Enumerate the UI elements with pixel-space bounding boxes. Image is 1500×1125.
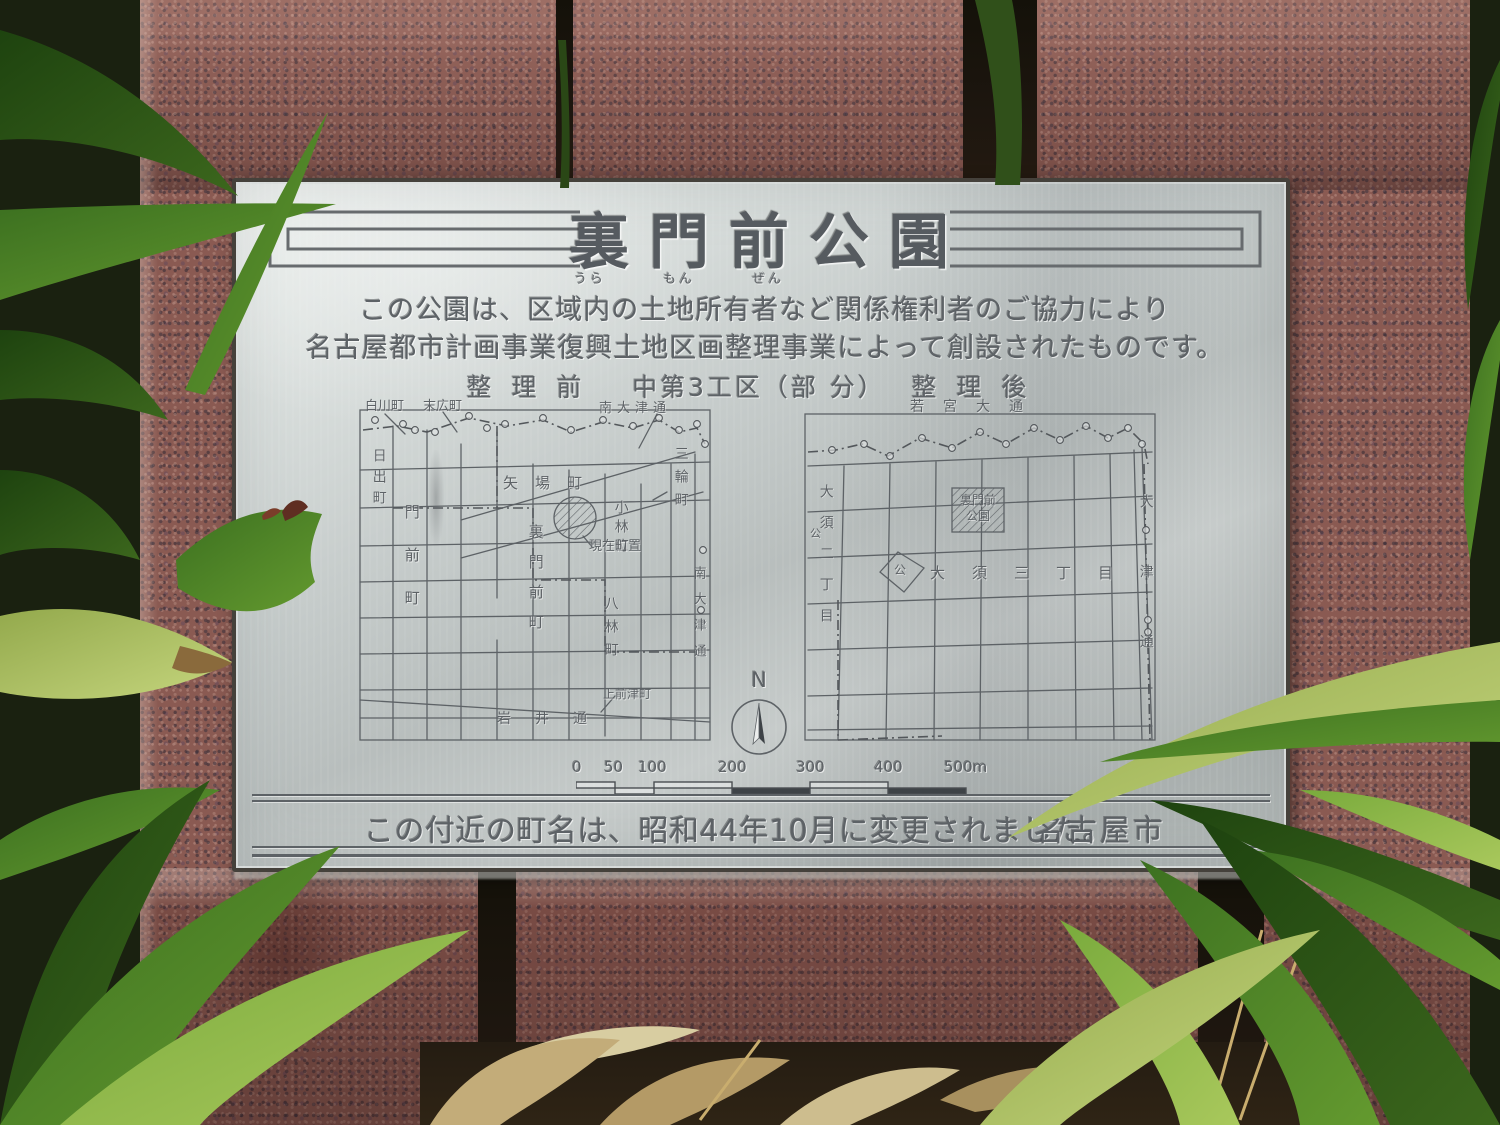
scale-tick: 50 bbox=[604, 758, 623, 776]
ornament-right bbox=[950, 208, 1268, 270]
map-label-hinode-cho: 日出町 bbox=[371, 448, 386, 511]
plaque-title-furigana: うら もん ぜん bbox=[559, 268, 799, 287]
footer-city-name: 名古屋市 bbox=[1034, 806, 1166, 850]
granite-left-edge bbox=[140, 0, 158, 1125]
intro-line-2: 名古屋都市計画事業復興土地区画整理事業によって創設されたものです。 bbox=[236, 326, 1294, 365]
granite-gap bbox=[556, 0, 573, 190]
map-label-otsu-dori: 大津通 bbox=[1138, 494, 1153, 704]
photo-of-park-plaque: 裏門前公園 うら もん ぜん この公園は、区域内の土地所有者など関係権利者のご協… bbox=[0, 0, 1500, 1125]
map-label-kobayashi-cho: 小林町 bbox=[613, 500, 628, 557]
scale-tick: 500m bbox=[944, 758, 987, 776]
granite-gap bbox=[963, 0, 1037, 190]
map-label-hachibayashi-cho: 八林町 bbox=[603, 596, 618, 665]
scale-tick: 100 bbox=[638, 758, 667, 776]
map-label-iwai-dori: 岩井通 bbox=[497, 712, 611, 727]
compass-needle-icon bbox=[727, 694, 791, 760]
map-label-minami-otsu-dori-top: 南大津通 bbox=[599, 402, 671, 416]
map-after-readjustment: 若宮大通 裏門前 公園 大須二丁目 大須三丁目 大津通 公 公 bbox=[802, 400, 1159, 747]
map-label-suehiro-cho: 末広町 bbox=[423, 400, 462, 414]
map-label-monzen-cho: 門前町 bbox=[403, 504, 419, 633]
scale-tick: 200 bbox=[718, 758, 747, 776]
map-label-osu-3chome: 大須三丁目 bbox=[930, 566, 1140, 582]
memorial-plaque: 裏門前公園 うら もん ぜん この公園は、区域内の土地所有者など関係権利者のご協… bbox=[232, 178, 1290, 872]
map-label-uramonzen-cho: 裏門前町 bbox=[527, 524, 543, 644]
map-label-park-symbol-left: 公 bbox=[810, 528, 821, 540]
map-label-minami-otsu-dori-right: 南大津通 bbox=[691, 566, 705, 670]
footer-rule bbox=[252, 794, 1270, 796]
scale-tick: 0 bbox=[572, 758, 582, 776]
footer-rule bbox=[252, 846, 1270, 848]
map-label-yaba-cho: 矢場町 bbox=[503, 476, 599, 492]
map-label-osu-2chome: 大須二丁目 bbox=[818, 484, 833, 639]
compass-rose: N bbox=[714, 668, 804, 768]
map-label-shirakawa-cho: 白川町 bbox=[365, 400, 404, 414]
granite-top-bevel bbox=[140, 0, 1470, 190]
map-label-park-symbol: 公 bbox=[894, 564, 906, 577]
map-label-park-name-line2: 公園 bbox=[954, 510, 1002, 523]
section-label-district: 中第3工区（部 分） bbox=[629, 368, 889, 404]
map-label-kamimaezu-cho: 上前津町 bbox=[603, 688, 651, 701]
map-label-park-name-line1: 裏門前 bbox=[954, 494, 1002, 507]
intro-line-1: この公園は、区域内の土地所有者など関係権利者のご協力により bbox=[236, 288, 1294, 327]
section-label-before: 整理前 bbox=[444, 368, 624, 404]
ornament-left bbox=[262, 208, 580, 270]
map-label-wakamiya-odori: 若宮大通 bbox=[910, 400, 1042, 415]
ground-soil bbox=[420, 1042, 1300, 1125]
footer-note: この付近の町名は、昭和44年10月に変更されました。 bbox=[364, 806, 1113, 850]
scale-tick: 400 bbox=[874, 758, 903, 776]
footer-rule bbox=[252, 854, 1270, 857]
scale-tick: 300 bbox=[796, 758, 825, 776]
footer-rule bbox=[252, 800, 1270, 802]
map-label-miwa-cho: 三輪町 bbox=[673, 446, 688, 515]
map-before-readjustment: 白川町 末広町 南大津通 日出町 門前町 矢場町 現在位置 小林町 三輪町 裏門… bbox=[357, 400, 714, 747]
compass-north-label: N bbox=[714, 668, 804, 692]
